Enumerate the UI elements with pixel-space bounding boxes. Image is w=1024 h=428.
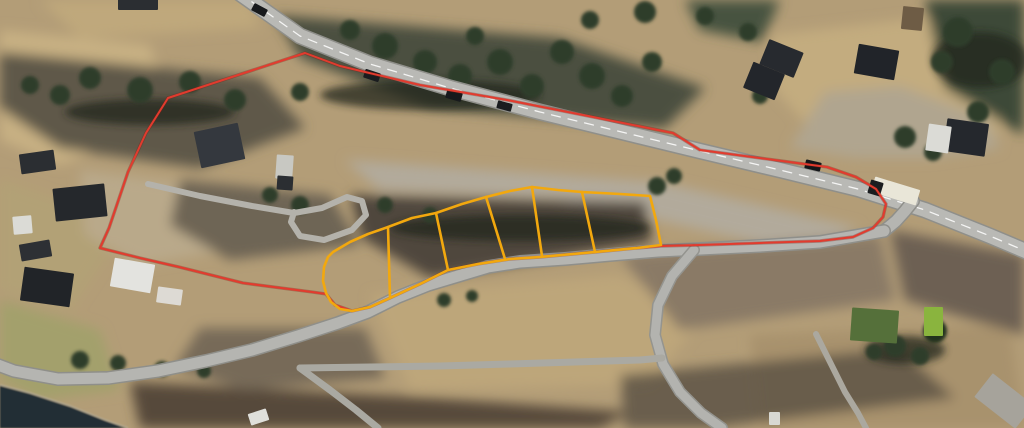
top-edge-building: [118, 0, 158, 10]
trailer-dark: [277, 175, 294, 190]
green-house: [850, 307, 899, 343]
garage-ne-white: [925, 124, 952, 154]
white-object-s: [769, 412, 780, 425]
farmhouse-left: [52, 183, 107, 221]
farmhouse-sw: [20, 267, 74, 308]
aerial-map: [0, 0, 1024, 428]
frame-shed-ne: [901, 6, 924, 31]
white-shed-left: [12, 215, 32, 235]
satellite-canvas: [0, 0, 1024, 428]
green-house-bright: [924, 307, 943, 336]
